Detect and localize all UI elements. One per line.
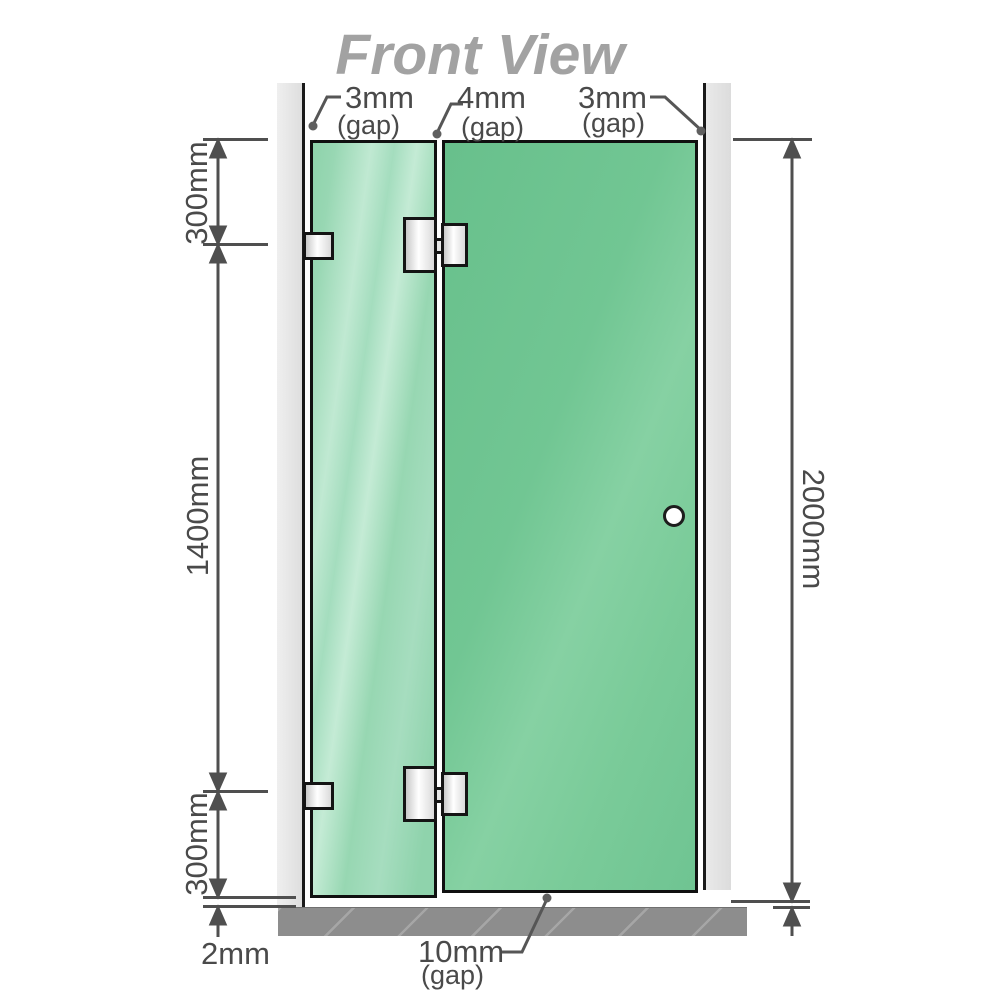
- door-glass-panel: [442, 140, 698, 893]
- top-hinge-panel-plate: [403, 217, 437, 273]
- left-wall: [277, 83, 305, 908]
- diagram-title: Front View: [335, 22, 624, 88]
- gap-label-top-middle-value: 4mm: [457, 80, 526, 116]
- dim-label-left-bottom: 300mm: [179, 792, 215, 895]
- wall-bracket-top: [303, 232, 334, 260]
- shower-screen-front-view-diagram: Front View: [0, 0, 1000, 1000]
- dim-label-right: 2000mm: [795, 469, 831, 590]
- gap-label-top-left-unit: (gap): [337, 110, 400, 141]
- dim-label-bottom-left: 2mm: [201, 936, 270, 972]
- dim-label-left-middle: 1400mm: [180, 456, 216, 577]
- top-hinge-door-plate: [441, 223, 468, 267]
- door-knob: [663, 505, 685, 527]
- gap-label-bottom-unit: (gap): [421, 960, 484, 991]
- wall-bracket-bottom: [303, 782, 334, 810]
- dim-label-left-top: 300mm: [179, 141, 215, 244]
- floor-slab: [278, 907, 747, 936]
- gap-label-top-right-unit: (gap): [582, 108, 645, 139]
- right-wall: [703, 83, 731, 890]
- bottom-hinge-panel-plate: [403, 766, 437, 822]
- gap-label-top-middle-unit: (gap): [461, 112, 524, 143]
- bottom-hinge-door-plate: [441, 772, 468, 816]
